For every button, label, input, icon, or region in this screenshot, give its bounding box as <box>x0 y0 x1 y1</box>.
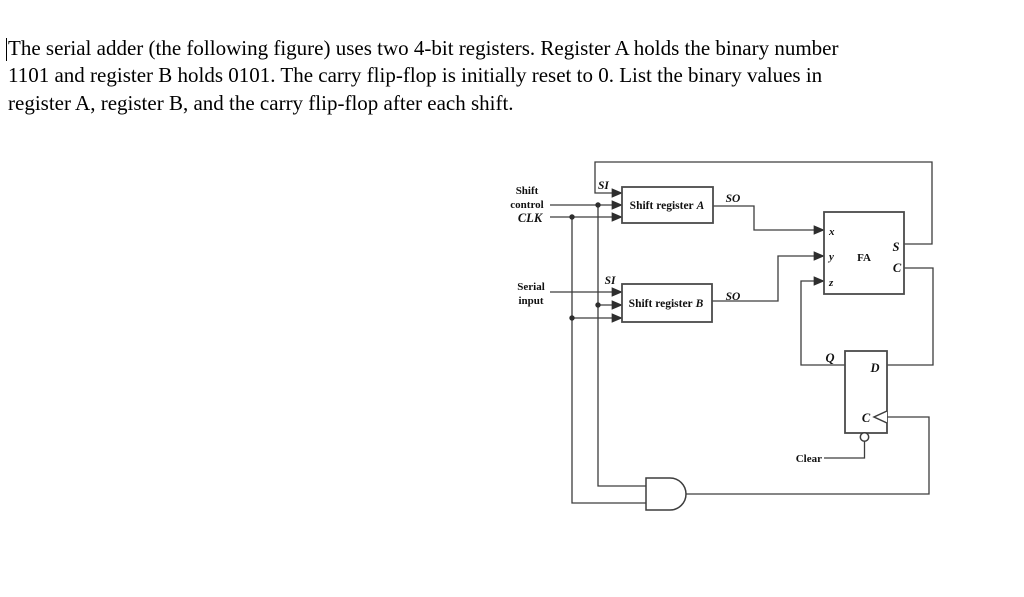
fa-x-input-label: x <box>828 226 835 238</box>
register-a-so-label: SO <box>726 193 741 205</box>
shift-register-b-label: Shift registerB <box>629 298 704 310</box>
input-label: input <box>518 295 543 307</box>
page: The serial adder (the following figure) … <box>0 0 1024 597</box>
fa-y-input-label: y <box>827 251 834 263</box>
clear-label: Clear <box>796 453 822 465</box>
shift-register-a-label: Shift registerA <box>630 200 705 212</box>
junction-dot <box>595 202 600 207</box>
junction-dot <box>595 302 600 307</box>
fa-sum-output-label: S <box>893 240 900 254</box>
wire-shift-control-vertical-to-and <box>598 205 646 486</box>
fa-z-input-label: z <box>828 277 834 289</box>
serial-label: Serial <box>517 281 545 293</box>
register-b-si-label: SI <box>605 275 616 287</box>
fa-carry-output-label: C <box>893 261 902 275</box>
junction-dot <box>569 214 574 219</box>
control-label: control <box>510 199 543 211</box>
clear-bubble-icon <box>860 433 868 441</box>
ff-d-input-label: D <box>869 361 879 375</box>
clk-label: CLK <box>518 211 544 225</box>
full-adder-label: FA <box>857 252 871 264</box>
wire-clk-vertical-to-and <box>572 217 646 503</box>
serial-adder-diagram: Shift control CLK Serial input SI SO Shi… <box>0 0 1024 597</box>
junction-dot <box>569 315 574 320</box>
shift-label: Shift <box>516 185 539 197</box>
and-gate <box>646 478 686 510</box>
register-a-si-label: SI <box>598 180 609 192</box>
register-b-so-label: SO <box>726 291 741 303</box>
wire-clear-to-ff <box>824 442 865 459</box>
ff-q-output-label: Q <box>825 351 834 365</box>
wire-so-a-to-fa-x <box>713 206 824 230</box>
ff-clock-input-label: C <box>862 411 871 425</box>
